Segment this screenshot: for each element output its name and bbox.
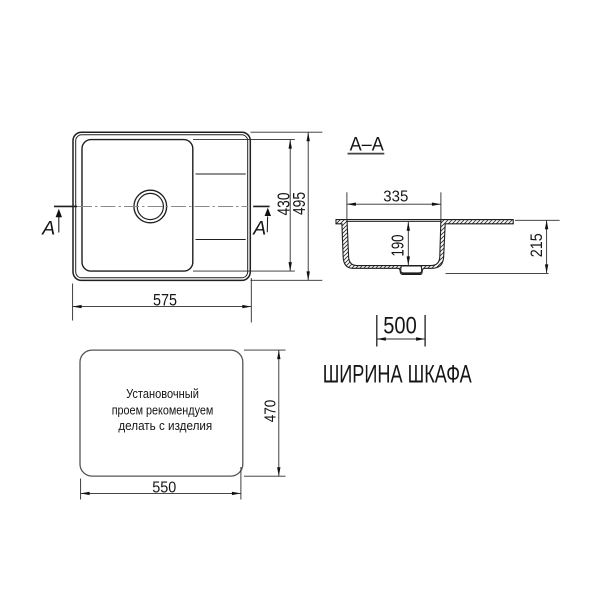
svg-text:215: 215 <box>528 233 546 257</box>
svg-text:Установочный: Установочный <box>126 386 199 401</box>
svg-text:495: 495 <box>289 192 309 215</box>
svg-text:A: A <box>252 217 266 239</box>
svg-text:190: 190 <box>387 234 407 256</box>
svg-text:500: 500 <box>383 312 417 339</box>
svg-text:ШИРИНА ШКАФА: ШИРИНА ШКАФА <box>323 360 472 388</box>
svg-text:470: 470 <box>263 399 280 422</box>
svg-text:335: 335 <box>383 189 408 206</box>
svg-text:575: 575 <box>153 292 177 310</box>
svg-text:проем рекомендуем: проем рекомендуем <box>112 403 214 418</box>
svg-text:A: A <box>41 218 55 240</box>
svg-text:делать с изделия: делать с изделия <box>118 418 212 433</box>
svg-text:550: 550 <box>152 480 176 497</box>
svg-text:A–A: A–A <box>350 134 384 156</box>
